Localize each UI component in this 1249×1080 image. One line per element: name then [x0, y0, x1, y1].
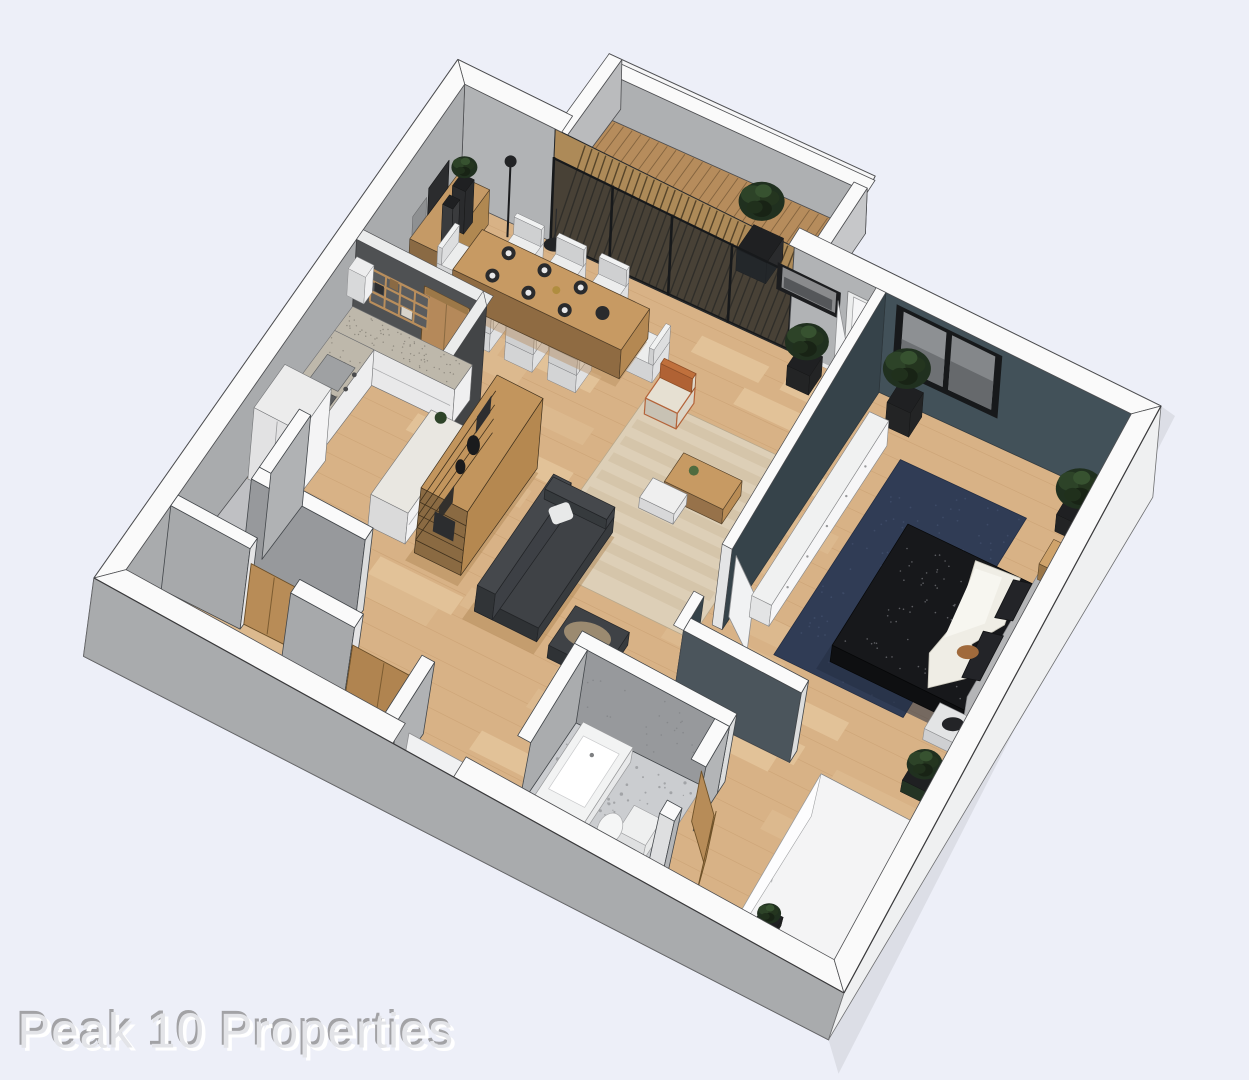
- svg-text:Peak 10 Properties: Peak 10 Properties: [18, 1005, 455, 1059]
